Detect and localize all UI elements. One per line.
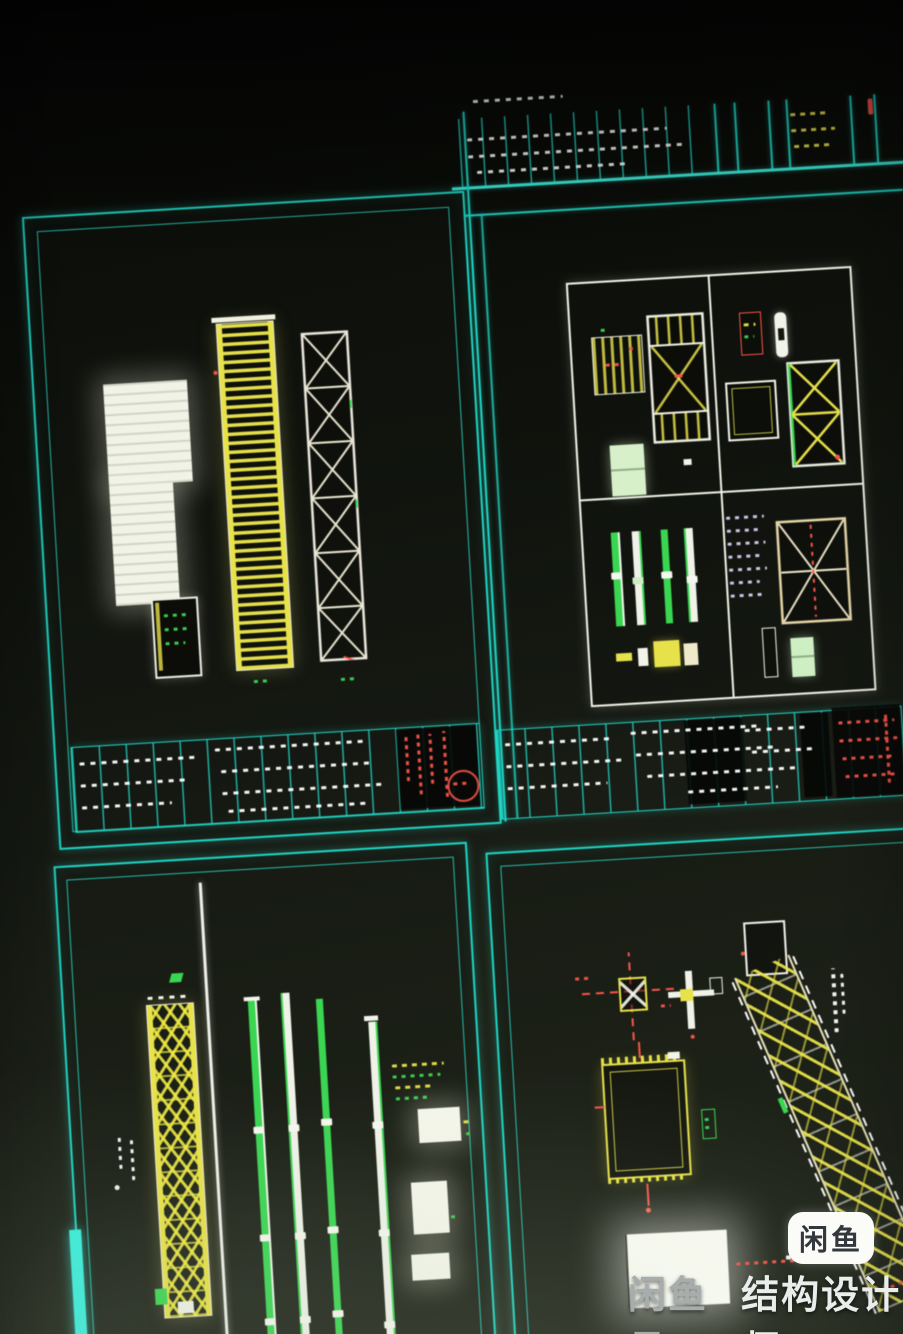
x-braced-frame [786, 359, 846, 468]
text-marks [790, 111, 830, 116]
beam-elevation [684, 528, 699, 622]
red-text [428, 734, 434, 784]
photo-of-cad-screen: 闲鱼 闲鱼号 结构设计师 [0, 0, 903, 1334]
grid-line [873, 94, 879, 162]
inner-frame [731, 386, 773, 435]
watermark-text: 闲鱼号 结构设计师 [628, 1264, 903, 1334]
grid-line [733, 103, 739, 171]
text-marks [744, 335, 754, 339]
white-fitting [638, 648, 649, 667]
approval-stamp-cell [396, 725, 481, 810]
base-detail-row [615, 637, 703, 677]
white-plate [709, 977, 723, 995]
inner-frame [610, 1068, 684, 1172]
empty-cell [800, 712, 833, 798]
beam-elevation [632, 531, 647, 625]
fitting [683, 643, 698, 666]
badge-text: 闲鱼 [799, 1217, 863, 1259]
small-mark [683, 459, 691, 465]
beam-elevation [611, 532, 626, 626]
grid-line [713, 104, 719, 172]
column-section-detail [618, 976, 648, 1012]
gusset-node [632, 577, 643, 585]
grid-line [849, 96, 855, 164]
base-plate [178, 1301, 195, 1314]
callout-box [418, 1107, 462, 1143]
schedule-panel [103, 380, 193, 487]
callout-box [411, 1181, 450, 1235]
text-marks [601, 328, 609, 331]
text-marks [165, 627, 191, 632]
symbol-notch [778, 328, 785, 340]
yellow-plate [680, 989, 694, 1002]
notes-block [726, 512, 772, 605]
text-marks [743, 323, 755, 327]
grid-line [767, 101, 773, 169]
text-marks [791, 127, 835, 133]
x-braced-frame [775, 517, 852, 625]
detail-callout-box [151, 596, 203, 679]
red-mark [629, 347, 637, 350]
base-frame-plan [601, 1059, 692, 1180]
grid-line [785, 100, 791, 168]
green-base-mark [155, 1288, 168, 1305]
annotation-cluster [392, 1061, 455, 1108]
xianyu-logo-badge: 闲鱼 [788, 1212, 874, 1264]
yellow-edge [155, 603, 163, 671]
post-detail [762, 627, 779, 678]
detail-sheet-grid[interactable] [566, 266, 877, 707]
red-text [416, 734, 423, 794]
member-cap [364, 1015, 378, 1021]
mini-table [790, 637, 815, 677]
watermark-account-label: 闲鱼号 [628, 1264, 725, 1334]
callout-box [411, 1253, 450, 1281]
mini-table [610, 444, 647, 497]
gusset-node [611, 572, 622, 580]
red-notes-cell [831, 704, 903, 798]
text-marks [165, 641, 185, 645]
grid-divider [708, 276, 735, 696]
schedule-panel [109, 483, 180, 607]
beam-elevation [661, 529, 674, 623]
watermark-account-name: 结构设计师 [741, 1264, 903, 1334]
cad-drawing-canvas [0, 0, 903, 1332]
seal-stamp-icon [447, 769, 481, 803]
red-revision-mark [867, 98, 873, 114]
red-text [404, 735, 410, 781]
detail-panel [591, 335, 645, 396]
red-detail-tag [739, 311, 764, 355]
text-marks [794, 143, 830, 148]
text-marks [473, 95, 563, 103]
yellow-fitting [653, 640, 680, 667]
braced-panel-detail [646, 312, 712, 444]
table-line [611, 468, 645, 472]
small-tag [668, 1052, 680, 1060]
gusset-node [686, 576, 697, 584]
red-mark [606, 363, 620, 367]
square-frame-detail [725, 380, 779, 442]
text-marks [164, 613, 188, 617]
yellow-fitting [616, 653, 632, 662]
gusset-node [661, 571, 672, 579]
green-tag [701, 1109, 717, 1140]
sheet-border-line [464, 189, 903, 217]
section-symbol [774, 312, 789, 358]
